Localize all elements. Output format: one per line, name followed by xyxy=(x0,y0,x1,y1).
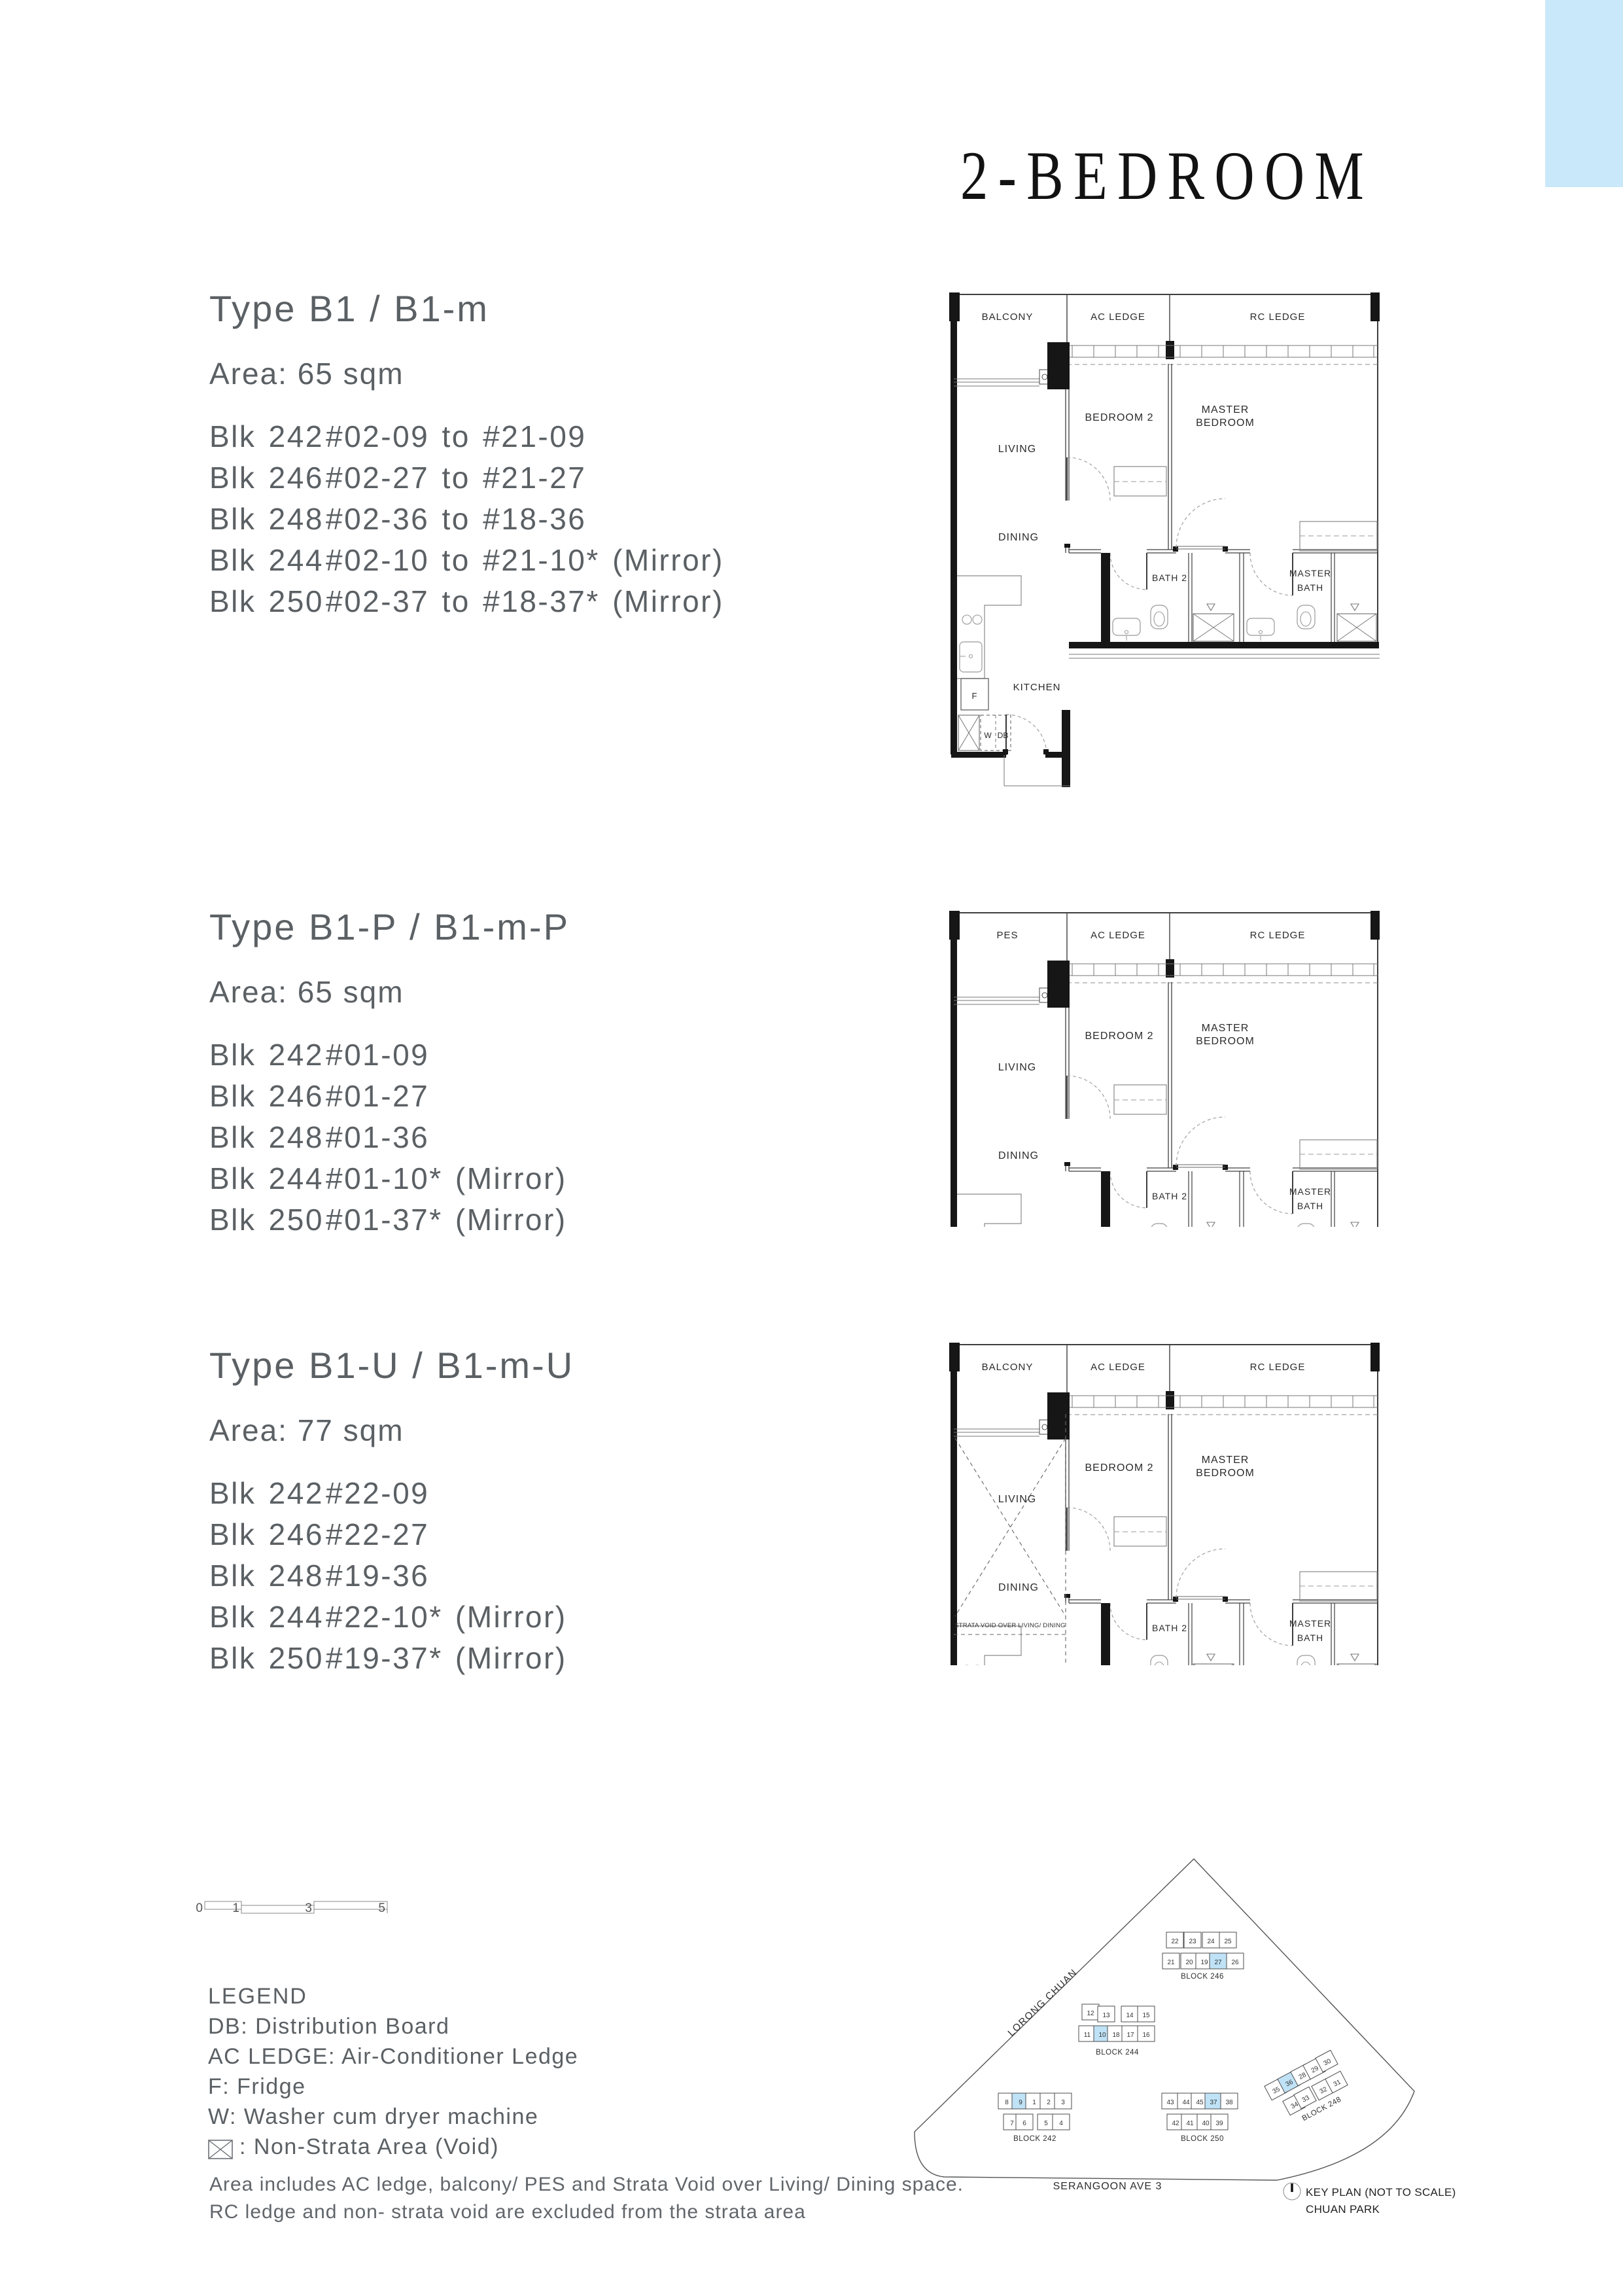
unit-range: #02-27 to #21-27 xyxy=(326,457,586,499)
svg-text:BATH 2: BATH 2 xyxy=(1152,1623,1187,1633)
svg-text:18: 18 xyxy=(1112,2032,1120,2039)
unit-blk: Blk 244 xyxy=(209,540,326,581)
area-label: Area: 65 sqm xyxy=(209,357,850,390)
svg-text:9: 9 xyxy=(1019,2099,1022,2106)
page-title: 2-BEDROOM xyxy=(960,136,1374,216)
unit-blk: Blk 246 xyxy=(209,1514,326,1555)
legend-void-row: : Non-Strata Area (Void) xyxy=(208,2132,578,2162)
key-plan-unit: 27 xyxy=(1210,1953,1227,1969)
block-label: BLOCK 242 xyxy=(1013,2135,1056,2143)
svg-text:21: 21 xyxy=(1167,1959,1175,1966)
svg-text:14: 14 xyxy=(1126,2012,1134,2019)
unit-range: #22-09 xyxy=(326,1473,429,1514)
svg-text:PES: PES xyxy=(996,930,1018,941)
unit-blk: Blk 248 xyxy=(209,1117,326,1158)
svg-text:22: 22 xyxy=(1171,1938,1179,1945)
svg-text:MASTER: MASTER xyxy=(1289,1618,1331,1629)
key-plan-unit: 5 xyxy=(1038,2114,1055,2130)
svg-text:11: 11 xyxy=(1084,2032,1091,2039)
unit-row: Blk 248#02-36 to #18-36 xyxy=(209,499,850,540)
svg-text:44: 44 xyxy=(1182,2099,1190,2106)
key-plan-unit: 23 xyxy=(1184,1932,1201,1948)
section-type-b1: Type B1 / B1-m Area: 65 sqm Blk 242#02-0… xyxy=(209,288,850,622)
svg-text:LIVING: LIVING xyxy=(998,1062,1036,1073)
key-plan-caption: KEY PLAN (NOT TO SCALE) xyxy=(1306,2186,1456,2199)
svg-text:10: 10 xyxy=(1098,2032,1106,2039)
svg-text:1: 1 xyxy=(232,1901,239,1915)
key-plan-unit: 21 xyxy=(1162,1953,1179,1969)
section-type-b1u: Type B1-U / B1-m-U Area: 77 sqm Blk 242#… xyxy=(209,1345,850,1679)
unit-range: #22-10* (Mirror) xyxy=(326,1597,567,1638)
svg-text:AC LEDGE: AC LEDGE xyxy=(1091,311,1145,323)
svg-text:BATH: BATH xyxy=(1297,582,1323,593)
key-plan-unit: 6 xyxy=(1016,2114,1033,2130)
svg-text:5: 5 xyxy=(1044,2120,1048,2127)
svg-text:39: 39 xyxy=(1215,2120,1223,2127)
svg-text:15: 15 xyxy=(1142,2012,1150,2019)
svg-text:37: 37 xyxy=(1210,2099,1217,2106)
corner-accent xyxy=(1545,0,1623,187)
unit-range: #02-10 to #21-10* (Mirror) xyxy=(326,540,724,581)
svg-text:12: 12 xyxy=(1087,2010,1094,2017)
unit-blk: Blk 244 xyxy=(209,1597,326,1638)
svg-text:24: 24 xyxy=(1207,1938,1215,1945)
floor-plan-drawing: BALCONYAC LEDGERC LEDGEBEDROOM 2MASTERBE… xyxy=(944,278,1382,795)
svg-text:BATH 2: BATH 2 xyxy=(1152,573,1187,583)
site-boundary xyxy=(915,1859,1414,2180)
unit-row: Blk 246#02-27 to #21-27 xyxy=(209,457,850,499)
unit-range: #01-36 xyxy=(326,1117,429,1158)
unit-blk: Blk 242 xyxy=(209,1034,326,1076)
svg-text:5: 5 xyxy=(378,1901,385,1915)
svg-text:MASTER: MASTER xyxy=(1202,1023,1249,1034)
scale-bar-drawing: 0135 xyxy=(196,1891,471,1921)
road-label-lorong-chuan: LORONG CHUAN xyxy=(1005,1967,1079,2039)
unit-blk: Blk 246 xyxy=(209,457,326,499)
unit-row: Blk 250#01-37* (Mirror) xyxy=(209,1199,850,1241)
unit-blk: Blk 250 xyxy=(209,581,326,622)
svg-text:3: 3 xyxy=(305,1901,312,1915)
svg-text:F: F xyxy=(972,691,978,701)
floor-plan-type-b1u: STRATA VOID OVER LIVING/ DININGBALCONYAC… xyxy=(944,1328,1382,1665)
unit-row: Blk 244#22-10* (Mirror) xyxy=(209,1597,850,1638)
legend-item: DB: Distribution Board xyxy=(208,2011,578,2041)
unit-row: Blk 248#19-36 xyxy=(209,1555,850,1597)
svg-text:6: 6 xyxy=(1022,2120,1026,2127)
unit-row: Blk 250#19-37* (Mirror) xyxy=(209,1638,850,1679)
area-label: Area: 77 sqm xyxy=(209,1414,850,1447)
svg-text:BEDROOM: BEDROOM xyxy=(1196,417,1255,429)
key-plan-unit: 16 xyxy=(1138,2026,1155,2041)
key-plan-unit: 38 xyxy=(1221,2093,1238,2109)
svg-text:BEDROOM: BEDROOM xyxy=(1196,1036,1255,1047)
key-plan-unit: 26 xyxy=(1227,1953,1244,1969)
svg-text:27: 27 xyxy=(1214,1959,1222,1966)
unit-blk: Blk 248 xyxy=(209,499,326,540)
key-plan-unit: 3 xyxy=(1055,2093,1072,2109)
svg-text:BALCONY: BALCONY xyxy=(982,311,1034,323)
section-type-b1p: Type B1-P / B1-m-P Area: 65 sqm Blk 242#… xyxy=(209,906,850,1241)
svg-text:W: W xyxy=(984,731,992,740)
floor-plan-type-b1p: PESAC LEDGERC LEDGEBEDROOM 2MASTERBEDROO… xyxy=(944,896,1382,1227)
page: 2-BEDROOM Type B1 / B1-m Area: 65 sqm Bl… xyxy=(0,0,1623,2296)
unit-row: Blk 242#01-09 xyxy=(209,1034,850,1076)
key-plan-unit: 17 xyxy=(1122,2026,1139,2041)
key-plan-unit: 4 xyxy=(1053,2114,1070,2130)
area-label: Area: 65 sqm xyxy=(209,976,850,1008)
svg-text:DINING: DINING xyxy=(998,1150,1039,1161)
unit-row: Blk 242#22-09 xyxy=(209,1473,850,1514)
svg-text:LIVING: LIVING xyxy=(998,444,1036,455)
svg-text:3: 3 xyxy=(1061,2099,1065,2106)
floor-plan-drawing: STRATA VOID OVER LIVING/ DININGBALCONYAC… xyxy=(944,1328,1382,1665)
svg-text:BATH: BATH xyxy=(1297,1633,1323,1643)
svg-text:41: 41 xyxy=(1186,2120,1194,2127)
type-label: Type B1-P / B1-m-P xyxy=(209,906,850,948)
svg-text:BEDROOM 2: BEDROOM 2 xyxy=(1085,1462,1153,1474)
svg-text:BEDROOM: BEDROOM xyxy=(1196,1468,1255,1479)
svg-text:DB: DB xyxy=(998,731,1009,740)
legend-item: AC LEDGE: Air-Conditioner Ledge xyxy=(208,2041,578,2072)
block-label: BLOCK 244 xyxy=(1096,2049,1139,2057)
svg-text:4: 4 xyxy=(1059,2120,1063,2127)
svg-text:45: 45 xyxy=(1196,2099,1204,2106)
svg-text:LIVING: LIVING xyxy=(998,1494,1036,1505)
svg-text:26: 26 xyxy=(1231,1959,1239,1966)
non-strata-void-icon xyxy=(208,2137,233,2157)
key-plan-unit: 12 xyxy=(1082,2004,1099,2020)
unit-range: #19-37* (Mirror) xyxy=(326,1638,567,1679)
svg-text:RC LEDGE: RC LEDGE xyxy=(1250,311,1306,323)
unit-list: Blk 242#01-09Blk 246#01-27Blk 248#01-36B… xyxy=(209,1034,850,1241)
legend-items: DB: Distribution BoardAC LEDGE: Air-Cond… xyxy=(208,2011,578,2132)
floor-plan-drawing: PESAC LEDGERC LEDGEBEDROOM 2MASTERBEDROO… xyxy=(944,896,1382,1227)
svg-text:BEDROOM 2: BEDROOM 2 xyxy=(1085,412,1153,423)
unit-blk: Blk 250 xyxy=(209,1638,326,1679)
scale-bar: 0135 xyxy=(196,1891,471,1921)
unit-list: Blk 242#02-09 to #21-09Blk 246#02-27 to … xyxy=(209,416,850,622)
unit-list: Blk 242#22-09Blk 246#22-27Blk 248#19-36B… xyxy=(209,1473,850,1679)
unit-range: #01-27 xyxy=(326,1076,429,1117)
unit-blk: Blk 242 xyxy=(209,416,326,457)
svg-text:BALCONY: BALCONY xyxy=(982,1362,1034,1373)
svg-text:MASTER: MASTER xyxy=(1202,404,1249,415)
key-plan-unit: 39 xyxy=(1211,2114,1228,2130)
svg-text:BATH 2: BATH 2 xyxy=(1152,1191,1187,1201)
unit-blk: Blk 242 xyxy=(209,1473,326,1514)
key-plan-unit: 24 xyxy=(1202,1932,1219,1948)
unit-row: Blk 250#02-37 to #18-37* (Mirror) xyxy=(209,581,850,622)
key-plan-unit: 41 xyxy=(1181,2114,1198,2130)
key-plan-drawing: 222324252120192726BLOCK 2461213141511101… xyxy=(901,1845,1465,2226)
block-label: BLOCK 246 xyxy=(1181,1973,1224,1981)
unit-row: Blk 246#01-27 xyxy=(209,1076,850,1117)
svg-text:MASTER: MASTER xyxy=(1202,1455,1249,1466)
key-plan-unit: 37 xyxy=(1205,2093,1222,2109)
svg-text:RC LEDGE: RC LEDGE xyxy=(1250,930,1306,941)
key-plan-unit: 25 xyxy=(1219,1932,1236,1948)
svg-text:AC LEDGE: AC LEDGE xyxy=(1091,930,1145,941)
unit-range: #01-10* (Mirror) xyxy=(326,1158,567,1199)
unit-row: Blk 246#22-27 xyxy=(209,1514,850,1555)
unit-row: Blk 244#01-10* (Mirror) xyxy=(209,1158,850,1199)
svg-text:42: 42 xyxy=(1172,2120,1179,2127)
legend-title: LEGEND xyxy=(208,1981,578,2011)
legend-item: W: Washer cum dryer machine xyxy=(208,2102,578,2132)
unit-blk: Blk 246 xyxy=(209,1076,326,1117)
svg-text:43: 43 xyxy=(1166,2099,1174,2106)
legend-void-text: : Non-Strata Area (Void) xyxy=(239,2132,499,2162)
unit-row: Blk 248#01-36 xyxy=(209,1117,850,1158)
key-plan-unit: 15 xyxy=(1138,2006,1155,2022)
svg-text:DINING: DINING xyxy=(998,532,1039,543)
block-label: BLOCK 250 xyxy=(1181,2135,1224,2143)
unit-range: #19-36 xyxy=(326,1555,429,1597)
svg-text:20: 20 xyxy=(1185,1959,1193,1966)
svg-text:8: 8 xyxy=(1005,2099,1009,2106)
svg-text:19: 19 xyxy=(1200,1959,1208,1966)
unit-blk: Blk 248 xyxy=(209,1555,326,1597)
key-plan-unit: 14 xyxy=(1121,2006,1138,2022)
svg-text:MASTER: MASTER xyxy=(1289,568,1331,578)
unit-range: #22-27 xyxy=(326,1514,429,1555)
key-plan-unit: 22 xyxy=(1166,1932,1183,1948)
unit-range: #02-36 to #18-36 xyxy=(326,499,586,540)
svg-text:AC LEDGE: AC LEDGE xyxy=(1091,1362,1145,1373)
unit-range: #02-09 to #21-09 xyxy=(326,416,586,457)
unit-row: Blk 242#02-09 to #21-09 xyxy=(209,416,850,457)
key-plan-project-name: CHUAN PARK xyxy=(1306,2203,1380,2216)
svg-text:25: 25 xyxy=(1224,1938,1232,1945)
key-plan: 222324252120192726BLOCK 2461213141511101… xyxy=(901,1845,1465,2226)
unit-blk: Blk 250 xyxy=(209,1199,326,1241)
type-label: Type B1-U / B1-m-U xyxy=(209,1345,850,1386)
unit-blk: Blk 244 xyxy=(209,1158,326,1199)
svg-text:KITCHEN: KITCHEN xyxy=(1013,682,1061,693)
key-plan-unit: 20 xyxy=(1181,1953,1198,1969)
unit-range: #01-09 xyxy=(326,1034,429,1076)
unit-range: #01-37* (Mirror) xyxy=(326,1199,567,1241)
road-label-serangoon-ave: SERANGOON AVE 3 xyxy=(1053,2181,1162,2192)
footnote: Area includes AC ledge, balcony/ PES and… xyxy=(209,2171,964,2226)
svg-text:1: 1 xyxy=(1032,2099,1036,2106)
footnote-line2: RC ledge and non- strata void are exclud… xyxy=(209,2199,964,2226)
svg-text:BEDROOM 2: BEDROOM 2 xyxy=(1085,1031,1153,1042)
floor-plan-type-b1: BALCONYAC LEDGERC LEDGEBEDROOM 2MASTERBE… xyxy=(944,278,1382,795)
svg-text:0: 0 xyxy=(196,1901,203,1915)
svg-text:RC LEDGE: RC LEDGE xyxy=(1250,1362,1306,1373)
svg-text:2: 2 xyxy=(1047,2099,1051,2106)
svg-text:16: 16 xyxy=(1142,2032,1150,2039)
unit-row: Blk 244#02-10 to #21-10* (Mirror) xyxy=(209,540,850,581)
footnote-line1: Area includes AC ledge, balcony/ PES and… xyxy=(209,2171,964,2199)
svg-text:7: 7 xyxy=(1010,2120,1014,2127)
key-plan-unit: 11 xyxy=(1079,2026,1096,2041)
legend: LEGEND DB: Distribution BoardAC LEDGE: A… xyxy=(208,1981,578,2162)
legend-item: F: Fridge xyxy=(208,2072,578,2102)
svg-text:MASTER: MASTER xyxy=(1289,1186,1331,1197)
svg-text:DINING: DINING xyxy=(998,1582,1039,1593)
key-plan-unit: 13 xyxy=(1098,2006,1115,2022)
key-plan-unit: 43 xyxy=(1162,2093,1179,2109)
svg-text:STRATA VOID OVER LIVING/ DININ: STRATA VOID OVER LIVING/ DINING xyxy=(954,1622,1066,1629)
svg-text:23: 23 xyxy=(1189,1938,1196,1945)
svg-text:17: 17 xyxy=(1126,2032,1134,2039)
svg-text:40: 40 xyxy=(1202,2120,1210,2127)
svg-text:38: 38 xyxy=(1225,2099,1233,2106)
svg-text:13: 13 xyxy=(1102,2012,1110,2019)
unit-range: #02-37 to #18-37* (Mirror) xyxy=(326,581,724,622)
svg-text:BATH: BATH xyxy=(1297,1201,1323,1211)
type-label: Type B1 / B1-m xyxy=(209,288,850,330)
